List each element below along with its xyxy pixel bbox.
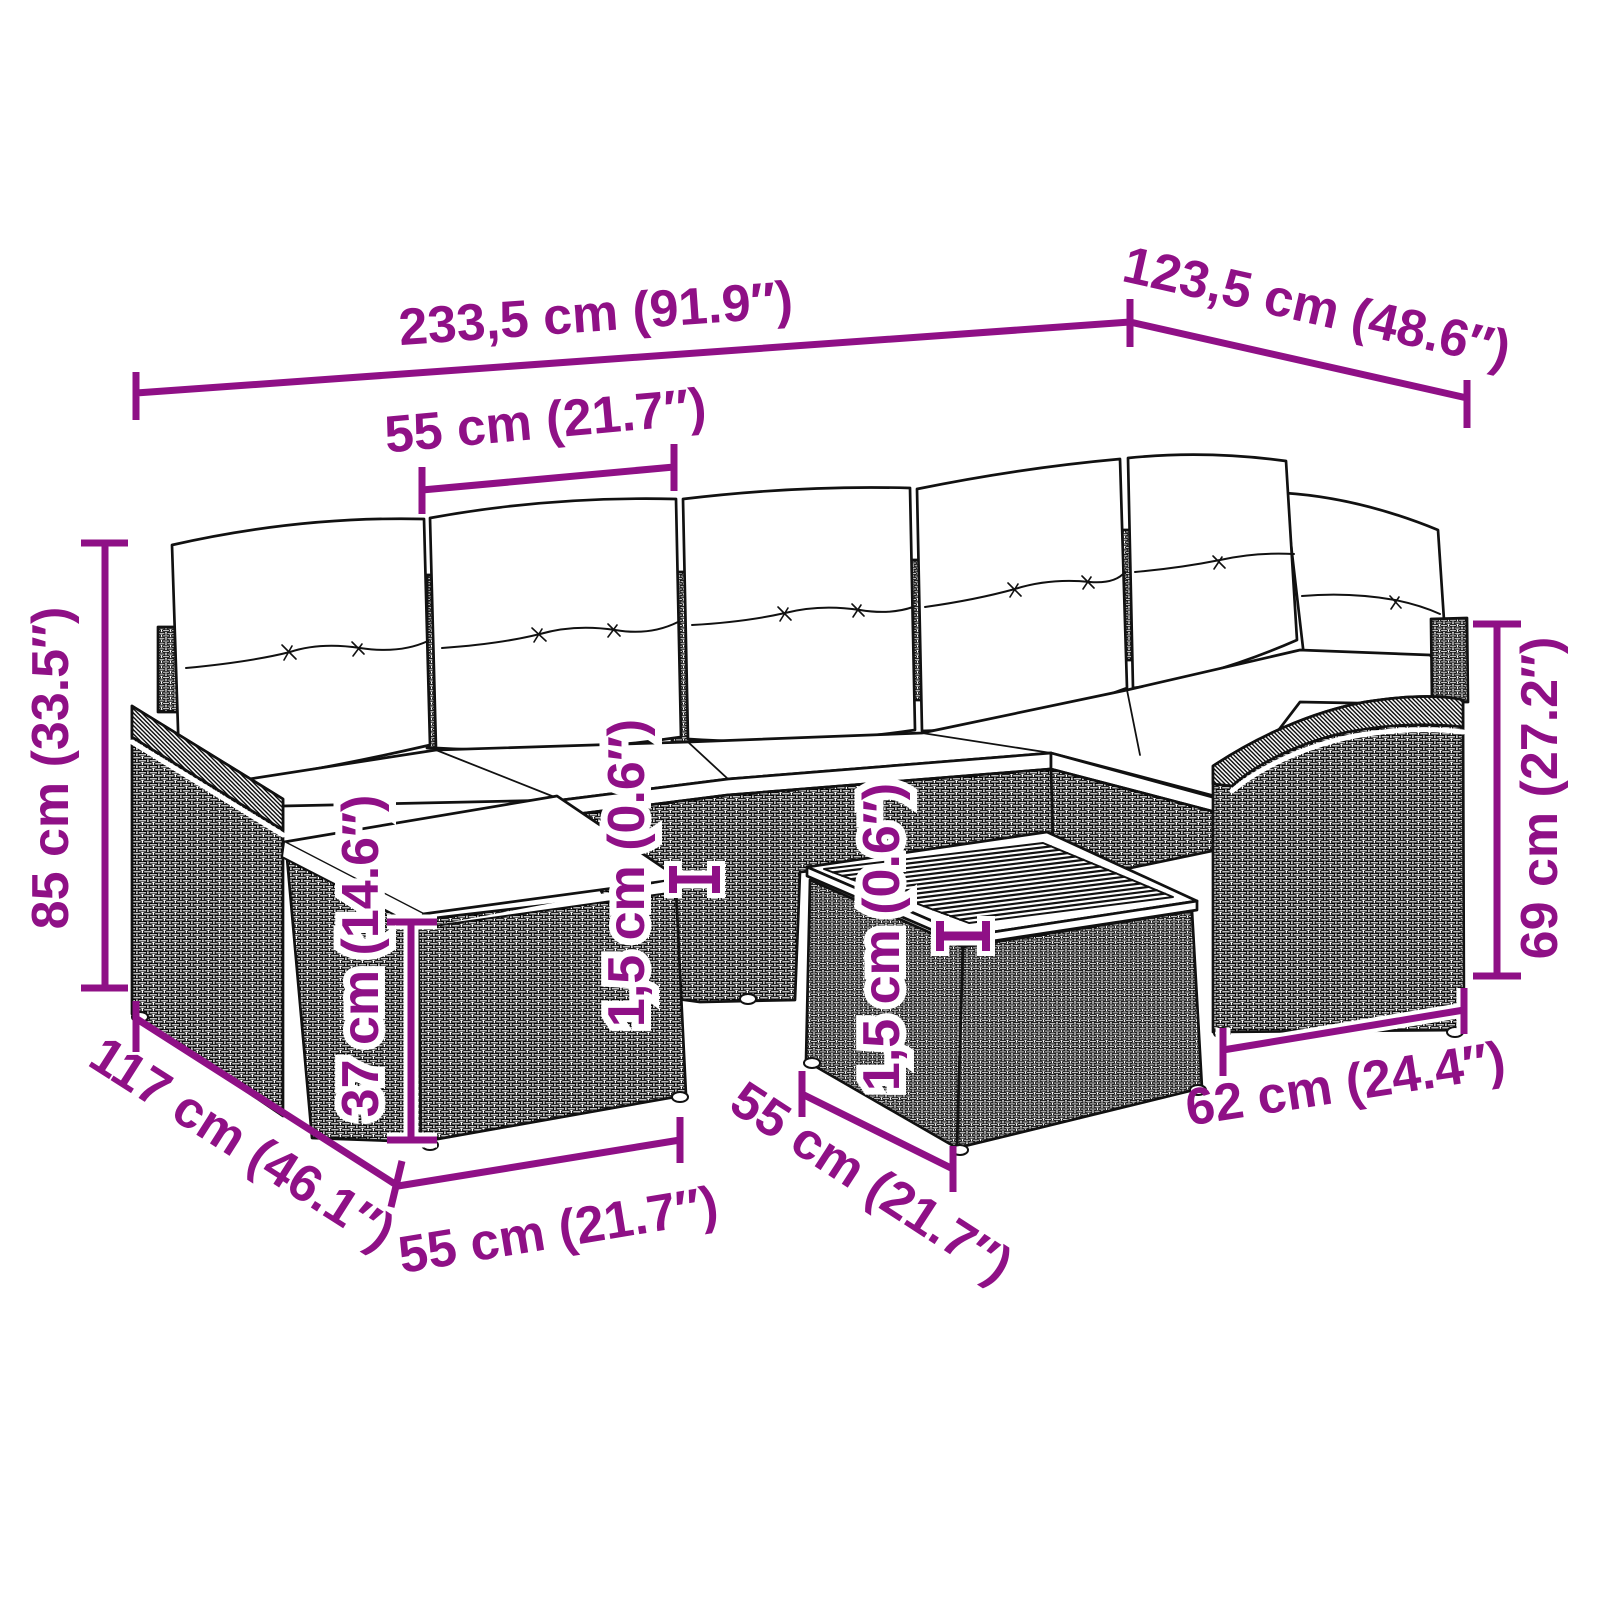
svg-text:233,5 cm (91.9″): 233,5 cm (91.9″) <box>397 271 795 357</box>
svg-text:69 cm (27.2″): 69 cm (27.2″) <box>1511 637 1569 960</box>
svg-text:55 cm (21.7″): 55 cm (21.7″) <box>394 1176 722 1285</box>
svg-text:1,5 cm (0.6″): 1,5 cm (0.6″) <box>853 783 911 1091</box>
svg-text:123,5 cm (48.6″): 123,5 cm (48.6″) <box>1118 236 1516 379</box>
svg-text:1,5 cm (0.6″): 1,5 cm (0.6″) <box>598 719 656 1027</box>
svg-text:85 cm (33.5″): 85 cm (33.5″) <box>22 607 80 930</box>
svg-text:37 cm (14.6″): 37 cm (14.6″) <box>332 795 390 1118</box>
svg-text:55 cm (21.7″): 55 cm (21.7″) <box>382 378 709 465</box>
